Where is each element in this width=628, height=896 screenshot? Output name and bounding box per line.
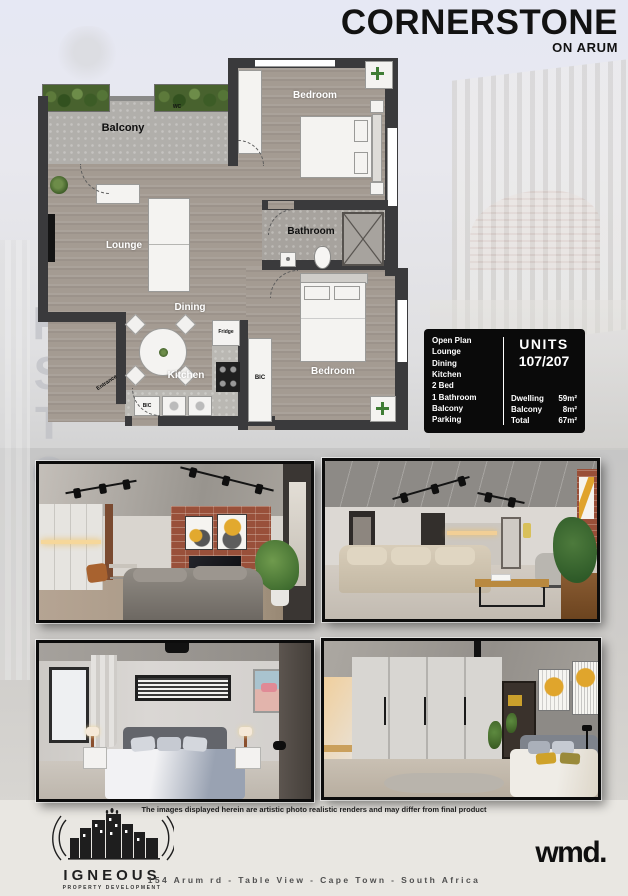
accent-pillow-yellow xyxy=(536,752,557,765)
entrance-opening xyxy=(132,416,158,426)
address-line: 154 Arum rd - Table View - Cape Town - S… xyxy=(0,875,628,885)
sofa-cushion xyxy=(193,566,247,580)
door xyxy=(501,517,521,569)
sofa-cushion xyxy=(133,568,187,582)
render-photo-bedroom-two xyxy=(321,638,601,800)
feature-item: Open Plan xyxy=(432,336,496,347)
area-row: Balcony 8m² xyxy=(511,404,577,415)
plus-marker-icon xyxy=(376,407,389,410)
bic-label: BIC xyxy=(248,375,272,381)
balcony-label: Balcony xyxy=(68,122,178,134)
wall xyxy=(116,312,126,404)
sofa-cushion xyxy=(435,547,475,565)
vent-grille xyxy=(135,675,231,701)
wardrobe-handle xyxy=(464,697,466,725)
area-value: 67m² xyxy=(558,415,577,426)
units-value: 107/207 xyxy=(511,353,577,369)
dining-label: Dining xyxy=(150,302,230,313)
bed xyxy=(105,749,245,799)
render-photo-living-kitchen xyxy=(36,461,314,623)
sofa-cushion xyxy=(347,547,387,565)
area-row: Dwelling 59m² xyxy=(511,393,577,404)
wardrobe-handle xyxy=(384,697,386,725)
door-handle xyxy=(273,741,286,750)
lamp-shade xyxy=(86,727,99,736)
mirror-plant-reflection xyxy=(506,713,517,733)
nightstand xyxy=(235,747,261,769)
fridge-label: Fridge xyxy=(212,329,240,335)
feature-item: Kitchen xyxy=(432,370,496,381)
yellow-coat xyxy=(523,523,531,538)
developer-tagline: PROPERTY DEVELOPMENT xyxy=(42,885,182,891)
oven xyxy=(188,396,212,416)
plant-pot xyxy=(271,590,289,606)
wc-label: WC xyxy=(168,104,186,110)
wall xyxy=(228,58,238,166)
igneous-skyline-icon xyxy=(50,808,174,864)
plant xyxy=(50,176,68,194)
pillow xyxy=(354,152,368,174)
table-centerpiece xyxy=(159,348,168,357)
lamp-shade xyxy=(239,727,252,736)
sofa-cushion xyxy=(391,547,431,565)
balcony-planter xyxy=(154,84,232,112)
wall xyxy=(38,96,48,322)
art-pink-car xyxy=(261,683,277,692)
bedroom-main-label: Bedroom xyxy=(270,90,360,101)
utility-nook xyxy=(365,61,393,89)
plant xyxy=(488,721,502,749)
mirror-art-reflection xyxy=(508,695,522,706)
feature-item: 1 Bathroom xyxy=(432,393,496,404)
area-value: 8m² xyxy=(563,404,577,415)
wmd-logo: wmd. xyxy=(535,836,606,870)
window xyxy=(397,300,407,362)
page-title: CORNERSTONE xyxy=(341,4,618,42)
wall-art xyxy=(538,669,570,711)
wall-art-arch xyxy=(572,661,599,715)
render-photo-living-room xyxy=(322,458,600,622)
feature-item: Balcony xyxy=(432,404,496,415)
pillow xyxy=(130,736,155,752)
kitchen-label: Kitchen xyxy=(146,370,226,381)
nightstand xyxy=(83,747,107,769)
area-label: Dwelling xyxy=(511,393,544,404)
ceiling-light xyxy=(165,643,189,653)
feature-item: Lounge xyxy=(432,347,496,358)
wall xyxy=(38,312,126,322)
window xyxy=(49,667,89,743)
tv-unit xyxy=(48,214,55,262)
wardrobe xyxy=(352,657,502,775)
floor-plan: Fridge BIC BIC Balcony WC Bedroom Lounge… xyxy=(28,56,420,442)
wall-art xyxy=(579,477,594,519)
rug xyxy=(384,773,504,793)
feature-item: Parking xyxy=(432,415,496,426)
feature-item: Dining xyxy=(432,359,496,370)
feature-item: 2 Bed xyxy=(432,381,496,392)
nightstand xyxy=(370,100,384,113)
units-label: UNITS xyxy=(511,336,577,352)
divider xyxy=(503,337,504,425)
coffee-table-legs xyxy=(479,587,545,607)
duvet-fold-line xyxy=(301,318,365,319)
render-photo-bedroom-one xyxy=(36,640,314,802)
unit-info-box: Open Plan Lounge Dining Kitchen 2 Bed 1 … xyxy=(424,329,585,433)
basin-drain xyxy=(286,257,290,261)
feature-list: Open Plan Lounge Dining Kitchen 2 Bed 1 … xyxy=(432,336,496,426)
nightstand xyxy=(370,182,384,195)
leather-chair xyxy=(86,563,108,584)
bed-headboard xyxy=(372,114,382,182)
plus-marker-icon xyxy=(371,72,384,75)
window xyxy=(255,60,335,67)
washer xyxy=(162,396,186,416)
under-cabinet-light xyxy=(447,531,497,535)
area-value: 59m² xyxy=(558,393,577,404)
bedside-lamp-stem xyxy=(586,731,588,749)
under-cabinet-light xyxy=(41,540,101,544)
pillow xyxy=(182,736,207,752)
book xyxy=(491,574,511,581)
pillow xyxy=(304,286,330,300)
coffee-table-top xyxy=(475,579,549,587)
wardrobe-handle xyxy=(424,697,426,725)
lounge-label: Lounge xyxy=(84,240,164,251)
pillow xyxy=(157,737,181,751)
toilet xyxy=(314,246,331,269)
wall-art xyxy=(217,514,247,550)
page-subtitle: ON ARUM xyxy=(341,40,618,55)
doorway-interior xyxy=(353,517,371,547)
bedroom-second-label: Bedroom xyxy=(290,366,376,377)
door-opening xyxy=(268,201,294,209)
shower xyxy=(342,212,384,266)
units-column: UNITS 107/207 Dwelling 59m² Balcony 8m² … xyxy=(511,336,577,426)
accent-pillow-olive xyxy=(560,752,581,764)
area-label: Balcony xyxy=(511,404,542,415)
balcony-planter xyxy=(42,84,110,112)
wall-art xyxy=(185,516,213,550)
pillow xyxy=(334,286,360,300)
area-label: Total xyxy=(511,415,530,426)
pillow xyxy=(354,120,368,142)
area-row: Total 67m² xyxy=(511,415,577,426)
bathroom-label: Bathroom xyxy=(268,226,354,237)
flyer-page: R S T O N CORNERSTONE ON ARUM xyxy=(0,0,628,896)
window xyxy=(387,128,397,206)
door xyxy=(279,643,311,799)
header: CORNERSTONE ON ARUM xyxy=(341,4,618,55)
